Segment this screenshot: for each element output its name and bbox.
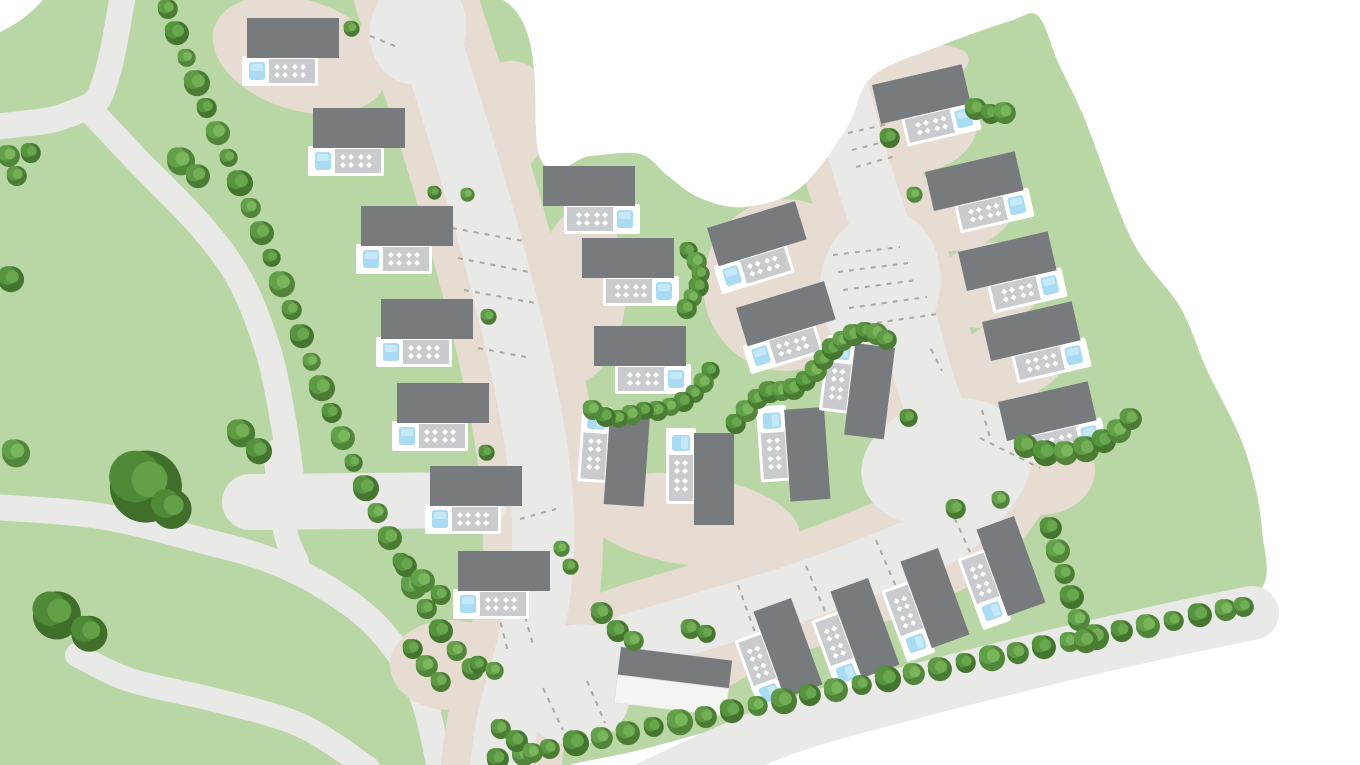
- deck: [478, 592, 526, 616]
- hot-tub-water-highlight: [771, 414, 779, 426]
- lodge-roof: [694, 433, 734, 525]
- lodge-roof: [397, 383, 489, 423]
- lodge-roof: [582, 238, 674, 278]
- deck: [761, 430, 788, 480]
- hot-tub-water-highlight: [658, 284, 670, 291]
- hot-tub-water-highlight: [670, 372, 682, 379]
- lodge-roof: [594, 326, 686, 366]
- deck: [381, 247, 429, 271]
- lodge-roof: [381, 299, 473, 339]
- map-viewport: [0, 0, 1360, 765]
- hot-tub-water-highlight: [434, 512, 446, 519]
- deck: [580, 430, 607, 480]
- deck: [567, 207, 615, 231]
- lodge-roof: [784, 407, 830, 502]
- road-pad-4: [520, 645, 630, 745]
- lodge-roof: [458, 551, 550, 591]
- deck: [669, 453, 693, 501]
- lodge-roof: [247, 18, 339, 58]
- hot-tub-water-highlight: [619, 212, 631, 219]
- lodge-roof: [361, 206, 453, 246]
- hot-tub-water-highlight: [251, 64, 263, 71]
- hot-tub-water-highlight: [462, 597, 474, 604]
- deck: [333, 149, 381, 173]
- deck: [267, 59, 315, 83]
- deck: [618, 367, 666, 391]
- deck: [401, 340, 449, 364]
- deck: [417, 424, 465, 448]
- lodge-roof: [313, 108, 405, 148]
- hot-tub-water-highlight: [317, 154, 329, 161]
- hot-tub-water-highlight: [385, 345, 397, 352]
- site-plan-map: [0, 0, 1360, 765]
- deck: [450, 507, 498, 531]
- lodge-roof: [604, 412, 650, 507]
- hot-tub-water-highlight: [365, 252, 377, 259]
- hot-tub-water-highlight: [681, 437, 688, 449]
- hot-tub-water-highlight: [401, 429, 413, 436]
- lodge-roof: [430, 466, 522, 506]
- deck: [606, 279, 654, 303]
- lodge-roof: [543, 166, 635, 206]
